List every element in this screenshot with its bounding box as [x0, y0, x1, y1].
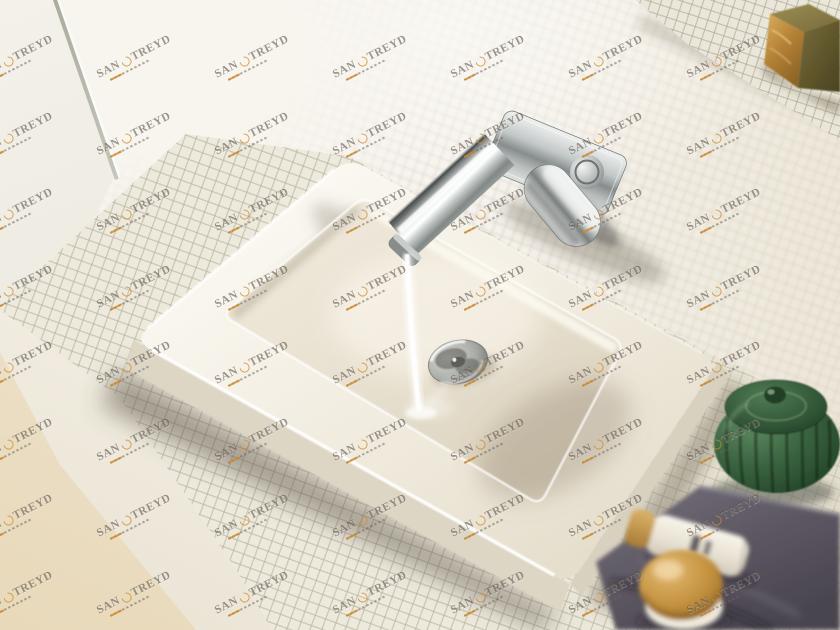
faucet-spout [390, 135, 515, 253]
watermark: SANTREYD [685, 411, 774, 467]
watermark: SANTREYD [331, 182, 420, 238]
watermark-swoosh-icon [119, 208, 133, 222]
watermark-swoosh-icon [591, 208, 605, 222]
watermark-swoosh-icon [591, 55, 605, 69]
watermark: SANTREYD [567, 29, 656, 85]
spout-top-edge [390, 135, 486, 223]
watermark: SANTREYD [0, 411, 67, 467]
watermark-swoosh-icon [119, 437, 133, 451]
watermark: SANTREYD [0, 335, 67, 391]
green-ceramic-jar [710, 380, 840, 507]
handle-shadow [545, 181, 626, 255]
watermark: SANTREYD [0, 105, 67, 161]
watermark-swoosh-icon [709, 55, 723, 69]
faucet-backplate [483, 108, 629, 217]
watermark: SANTREYD [449, 335, 538, 391]
watermark-swoosh-icon [473, 514, 487, 528]
watermark: SANTREYD [567, 335, 656, 391]
tube-shadow [643, 547, 757, 594]
watermark-swoosh-icon [473, 437, 487, 451]
ledge-shadow [637, 15, 840, 149]
spout-highlight [399, 144, 494, 231]
watermark-swoosh-icon [237, 55, 251, 69]
bathroom-product-photo: SANTREYDSANTREYDSANTREYDSANTREYDSANTREYD… [0, 0, 840, 630]
watermark-swoosh-icon [1, 131, 15, 145]
backplate-shadow [496, 188, 673, 296]
watermark-swoosh-icon [591, 514, 605, 528]
watermark: SANTREYD [0, 29, 67, 85]
faucet-collar [570, 155, 604, 189]
soap-front-face [764, 14, 804, 88]
spout-shadow [298, 187, 482, 352]
mosaic-counter [0, 0, 840, 630]
scene-graphics [0, 0, 840, 630]
watermark: SANTREYD [213, 411, 302, 467]
watermark: SANTREYD [213, 105, 302, 161]
watermark-swoosh-icon [1, 590, 15, 604]
watermark-swoosh-icon [1, 208, 15, 222]
watermark: SANTREYD [95, 29, 184, 85]
basin-back-wall-light [370, 210, 616, 349]
watermark-swoosh-icon [119, 590, 133, 604]
watermark-swoosh-icon [591, 590, 605, 604]
drain [424, 332, 500, 392]
watermark: SANTREYD [449, 488, 538, 544]
watermark-swoosh-icon [119, 131, 133, 145]
watermark: SANTREYD [95, 105, 184, 161]
wall-edge-line [51, 0, 119, 180]
watermark: SANTREYD [213, 335, 302, 391]
watermark: SANTREYD [567, 564, 656, 620]
watermark-swoosh-icon [237, 208, 251, 222]
watermark-swoosh-icon [709, 437, 723, 451]
watermark: SANTREYD [567, 488, 656, 544]
watermark: SANTREYD [331, 488, 420, 544]
watermark-swoosh-icon [473, 284, 487, 298]
cream-jar [636, 550, 732, 630]
watermark-swoosh-icon [237, 514, 251, 528]
watermark-swoosh-icon [237, 361, 251, 375]
sink-front-edge-highlight [150, 349, 555, 575]
watermark: SANTREYD [685, 488, 774, 544]
watermark-swoosh-icon [1, 284, 15, 298]
watermark-swoosh-icon [355, 55, 369, 69]
watermark-swoosh-icon [237, 131, 251, 145]
jar-shadow [710, 477, 834, 507]
faucet-collar-ring [576, 161, 599, 184]
soap-side-face [798, 20, 840, 92]
watermark-swoosh-icon [473, 361, 487, 375]
watermark: SANTREYD [331, 335, 420, 391]
sink-edge-highlight [148, 170, 335, 329]
watermark: SANTREYD [449, 258, 538, 314]
watermark: SANTREYD [685, 564, 774, 620]
watermark: SANTREYD [567, 411, 656, 467]
watermark: SANTREYD [567, 258, 656, 314]
washbasin-body [141, 163, 712, 578]
watermark-swoosh-icon [473, 131, 487, 145]
watermark-swoosh-icon [473, 55, 487, 69]
watermark-swoosh-icon [1, 55, 15, 69]
watermark-swoosh-icon [119, 514, 133, 528]
faucet [386, 108, 673, 296]
watermark: SANTREYD [331, 258, 420, 314]
watermark: SANTREYD [95, 564, 184, 620]
soap-top-face [770, 4, 840, 32]
counter-soft-focus-overlay [0, 0, 840, 630]
mosaic-wall [0, 0, 840, 630]
watermark: SANTREYD [0, 564, 67, 620]
water-splash [405, 407, 437, 419]
watermark: SANTREYD [685, 105, 774, 161]
watermark: SANTREYD [331, 411, 420, 467]
watermark-swoosh-icon [1, 514, 15, 528]
watermark: SANTREYD [331, 564, 420, 620]
tube-cap [623, 507, 657, 549]
watermark-swoosh-icon [709, 284, 723, 298]
watermark-swoosh-icon [237, 590, 251, 604]
watermark-swoosh-icon [119, 361, 133, 375]
watermark: SANTREYD [95, 335, 184, 391]
watermark-swoosh-icon [473, 208, 487, 222]
spout-aerator [386, 233, 423, 269]
sink-front-face [124, 340, 570, 612]
watermark: SANTREYD [685, 182, 774, 238]
watermark: SANTREYD [685, 258, 774, 314]
watermark-swoosh-icon [119, 284, 133, 298]
watermark: SANTREYD [0, 488, 67, 544]
wall-soft-focus-overlay [0, 0, 840, 630]
soap-block [762, 4, 840, 116]
watermark: SANTREYD [685, 335, 774, 391]
watermark-swoosh-icon [591, 284, 605, 298]
watermark: SANTREYD [213, 564, 302, 620]
watermark-swoosh-icon [709, 514, 723, 528]
watermark-swoosh-icon [709, 131, 723, 145]
watermark-swoosh-icon [709, 590, 723, 604]
watermark: SANTREYD [0, 258, 67, 314]
watermark-swoosh-icon [355, 131, 369, 145]
watermark: SANTREYD [449, 411, 538, 467]
basin-rim-highlight [227, 200, 620, 501]
basin-corner-shadow [457, 354, 652, 525]
tube-body [642, 511, 752, 579]
sink-right-face [570, 362, 730, 596]
watermark-swoosh-icon [709, 208, 723, 222]
watermark-swoosh-icon [1, 361, 15, 375]
watermark: SANTREYD [95, 488, 184, 544]
watermark-swoosh-icon [473, 590, 487, 604]
tiled-ledge [600, 0, 840, 154]
jar-knob [764, 387, 786, 404]
watermark-layer: SANTREYDSANTREYDSANTREYDSANTREYDSANTREYD… [0, 0, 840, 630]
watermark-swoosh-icon [237, 284, 251, 298]
watermark-swoosh-icon [1, 437, 15, 451]
left-wall-panel [0, 0, 130, 330]
jar-body [714, 395, 840, 493]
watermark: SANTREYD [567, 182, 656, 238]
water-stream [405, 254, 454, 419]
tube-logo-mark [688, 534, 702, 554]
sink-shadow-right [586, 376, 748, 616]
watermark: SANTREYD [331, 105, 420, 161]
watermark: SANTREYD [213, 29, 302, 85]
watermark: SANTREYD [449, 29, 538, 85]
watermark-swoosh-icon [709, 361, 723, 375]
jar-ribs [726, 399, 830, 493]
floor [0, 0, 840, 630]
watermark: SANTREYD [449, 105, 538, 161]
watermark: SANTREYD [0, 182, 67, 238]
faucet-handle [514, 155, 610, 256]
watermark: SANTREYD [95, 182, 184, 238]
watermark: SANTREYD [95, 258, 184, 314]
watermark-swoosh-icon [355, 208, 369, 222]
cosmetic-tube [622, 506, 752, 580]
watermark: SANTREYD [685, 29, 774, 85]
sink-back-edge-highlight [364, 167, 702, 354]
jar-lid [725, 380, 827, 434]
watermark-swoosh-icon [119, 55, 133, 69]
watermark: SANTREYD [449, 182, 538, 238]
watermark-swoosh-icon [355, 590, 369, 604]
watermark-swoosh-icon [591, 131, 605, 145]
watermark-swoosh-icon [355, 514, 369, 528]
watermark: SANTREYD [449, 564, 538, 620]
watermark: SANTREYD [95, 411, 184, 467]
watermark: SANTREYD [213, 182, 302, 238]
watermark-swoosh-icon [355, 361, 369, 375]
basin [227, 200, 620, 501]
watermark-swoosh-icon [237, 437, 251, 451]
watermark: SANTREYD [567, 105, 656, 161]
cream-jar-base [645, 583, 723, 629]
basin-left-wall-shadow [234, 208, 358, 316]
jar-rim-light [726, 403, 748, 430]
soap-shadow [762, 60, 840, 116]
watermark: SANTREYD [213, 488, 302, 544]
watermark-swoosh-icon [591, 437, 605, 451]
basin-light-pool [330, 253, 540, 377]
watermark-swoosh-icon [355, 284, 369, 298]
sink-shadow [100, 368, 560, 630]
watermark-swoosh-icon [591, 361, 605, 375]
watermark: SANTREYD [213, 258, 302, 314]
purple-towel [596, 486, 840, 630]
cream-jar-lid [639, 550, 723, 620]
watermark-swoosh-icon [355, 437, 369, 451]
counter-front-edge [0, 0, 840, 630]
watermark: SANTREYD [331, 29, 420, 85]
